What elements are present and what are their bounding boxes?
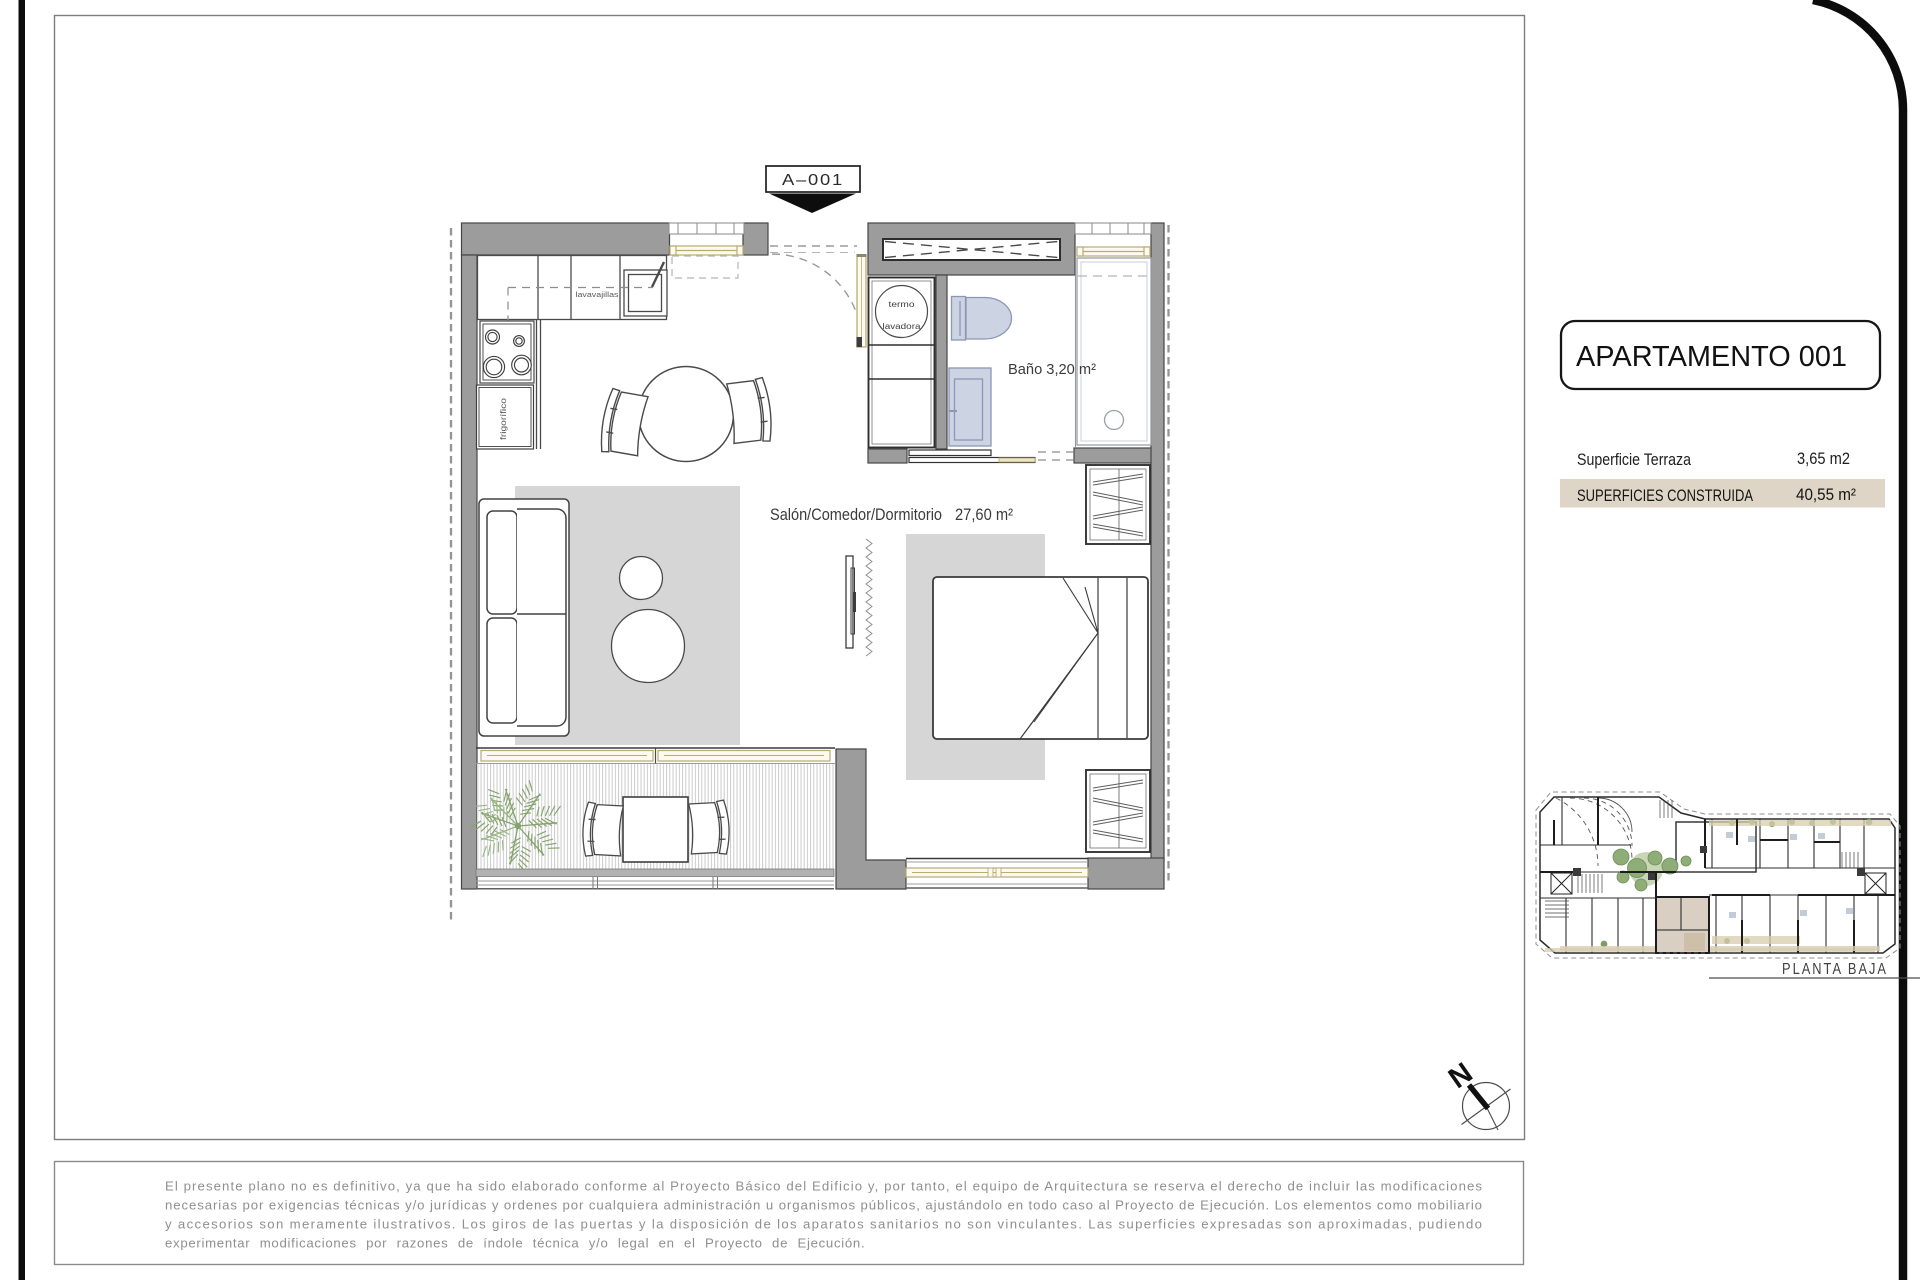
svg-text:experimentar modificaciones po: experimentar modificaciones por razones … (165, 1236, 865, 1251)
svg-text:necesarias por exigencias técn: necesarias por exigencias técnicas y/o j… (165, 1198, 1482, 1213)
svg-text:El presente plano no es defini: El presente plano no es definitivo, ya q… (165, 1179, 1482, 1194)
svg-text:y accesorios son meramente ilu: y accesorios son meramente ilustrativos.… (165, 1217, 1482, 1232)
